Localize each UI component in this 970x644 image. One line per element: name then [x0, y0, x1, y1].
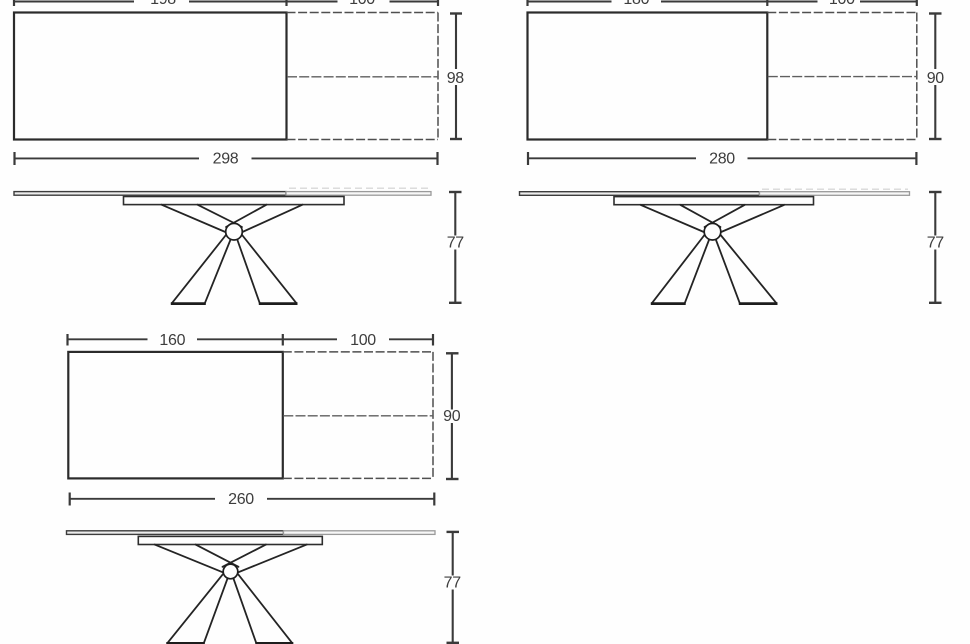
svg-text:260: 260 [228, 491, 254, 508]
svg-text:160: 160 [159, 332, 185, 349]
svg-text:100: 100 [829, 0, 855, 8]
svg-text:280: 280 [709, 150, 735, 167]
svg-text:100: 100 [349, 0, 375, 8]
svg-text:298: 298 [213, 151, 239, 168]
svg-text:100: 100 [350, 332, 376, 349]
svg-text:77: 77 [444, 575, 462, 592]
svg-text:198: 198 [150, 0, 176, 8]
svg-text:77: 77 [927, 235, 945, 252]
svg-text:77: 77 [447, 235, 465, 252]
svg-text:90: 90 [443, 408, 461, 425]
svg-text:90: 90 [927, 70, 945, 87]
svg-text:180: 180 [623, 0, 649, 8]
svg-text:98: 98 [447, 70, 465, 87]
